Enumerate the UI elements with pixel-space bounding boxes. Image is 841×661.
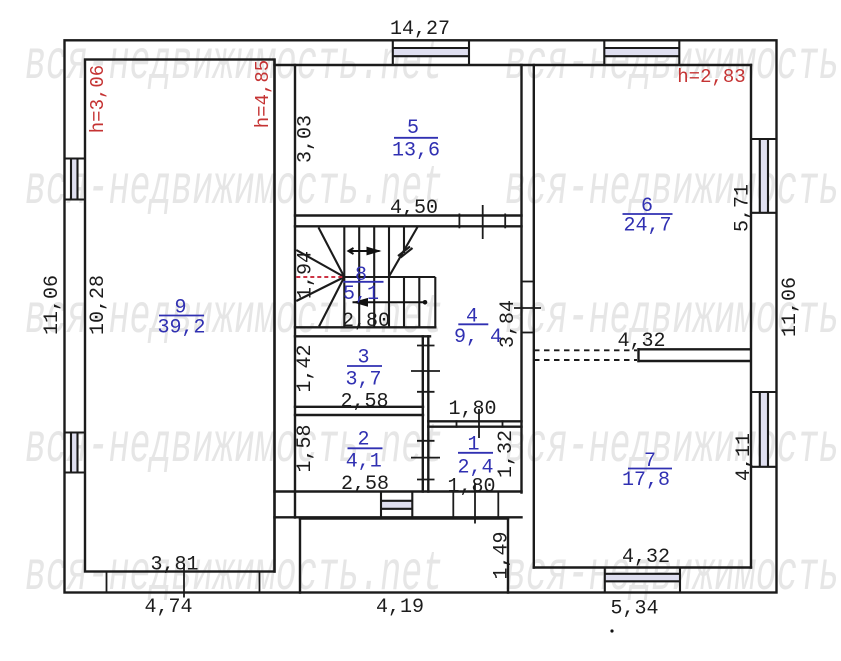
- svg-text:24,7: 24,7: [623, 215, 671, 238]
- svg-text:10,28: 10,28: [87, 275, 110, 335]
- svg-text:h=3,06: h=3,06: [87, 65, 109, 133]
- svg-text:11,06: 11,06: [41, 275, 64, 335]
- svg-text:17,8: 17,8: [622, 469, 670, 492]
- svg-text:1,42: 1,42: [294, 344, 317, 392]
- svg-text:4,50: 4,50: [390, 197, 438, 220]
- svg-text:4,74: 4,74: [144, 596, 192, 619]
- svg-text:1,94: 1,94: [295, 251, 318, 299]
- svg-text:2,4: 2,4: [457, 457, 493, 480]
- svg-text:4,11: 4,11: [733, 433, 756, 481]
- svg-text:4,32: 4,32: [622, 546, 670, 569]
- svg-text:5,1: 5,1: [343, 283, 379, 306]
- svg-text:1,32: 1,32: [495, 430, 518, 478]
- svg-text:5,34: 5,34: [610, 598, 658, 621]
- svg-text:3,7: 3,7: [345, 369, 381, 392]
- svg-text:2,58: 2,58: [341, 473, 389, 496]
- svg-text:h=2,83: h=2,83: [677, 66, 745, 88]
- svg-text:11,06: 11,06: [779, 277, 802, 337]
- svg-text:5: 5: [407, 117, 419, 140]
- svg-text:4,19: 4,19: [376, 596, 424, 619]
- svg-text:1,49: 1,49: [491, 531, 514, 579]
- svg-text:2,80: 2,80: [342, 310, 390, 333]
- svg-text:13,6: 13,6: [392, 140, 440, 163]
- svg-text:вся-недвижимость.net: вся-недвижимость.net: [25, 156, 443, 220]
- svg-text:4,1: 4,1: [346, 451, 382, 474]
- svg-text:1,58: 1,58: [294, 424, 317, 472]
- svg-text:вся-недвижимость.net: вся-недвижимость.net: [505, 414, 841, 478]
- svg-text:5,71: 5,71: [732, 184, 755, 232]
- svg-text:14,27: 14,27: [390, 18, 450, 41]
- svg-text:3,81: 3,81: [150, 554, 198, 577]
- svg-text:вся-недвижимость.net: вся-недвижимость.net: [505, 156, 841, 220]
- svg-text:h=4,85: h=4,85: [252, 60, 274, 128]
- svg-text:3,03: 3,03: [295, 115, 318, 163]
- svg-text:39,2: 39,2: [157, 317, 205, 340]
- svg-text:4,32: 4,32: [617, 330, 665, 353]
- svg-text:1,80: 1,80: [448, 398, 496, 421]
- svg-text:9, 4: 9, 4: [454, 326, 502, 349]
- svg-text:2,58: 2,58: [340, 391, 388, 414]
